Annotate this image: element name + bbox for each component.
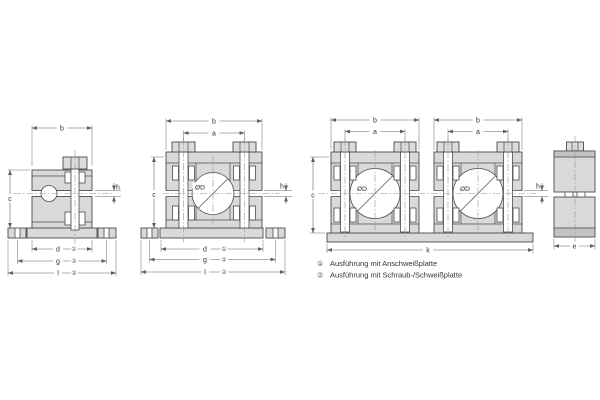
dim-label-a: a	[476, 129, 480, 136]
dim-label-d: d	[56, 247, 60, 254]
dim-l: l ②	[141, 240, 285, 277]
dim-g: g ②	[150, 240, 276, 264]
cover-plate	[554, 151, 595, 157]
dim-label-c: c	[311, 193, 315, 200]
note-marker-1: ①	[221, 246, 226, 253]
diameter-label: ØD	[460, 185, 470, 193]
plate-hole	[147, 228, 152, 238]
legend-text-2: Ausführung mit Schraub-/Schweißplatte	[330, 271, 462, 280]
drawing-page: b c h d ①	[0, 0, 600, 400]
common-plate	[327, 233, 533, 242]
note-marker-2: ②	[71, 258, 77, 265]
dim-label-b: b	[373, 118, 377, 125]
dim-c: c	[5, 170, 31, 228]
dim-label-a: a	[373, 129, 377, 136]
legend-marker-1: ①	[317, 260, 323, 268]
note-marker-2: ②	[71, 270, 77, 277]
dim-d: d ①	[161, 240, 263, 254]
dim-label-c: c	[152, 192, 156, 199]
legend-text-1: Ausführung mit Anschweißplatte	[330, 259, 437, 268]
dim-label-k: k	[426, 248, 430, 255]
plate-hole	[104, 228, 109, 238]
twin-clamp-left: ØD	[330, 139, 420, 237]
dim-label-g: g	[203, 257, 207, 264]
note-marker-2: ②	[221, 269, 227, 276]
plate-hole	[273, 228, 278, 238]
base-plate	[554, 228, 595, 237]
dim-e: e	[554, 239, 595, 251]
dim-label-h: h	[536, 184, 540, 191]
dim-label-c: c	[8, 196, 12, 203]
technical-drawing: b c h d ①	[0, 0, 600, 400]
dim-d: d ①	[32, 240, 92, 254]
legend: ① Ausführung mit Anschweißplatte ② Ausfü…	[317, 259, 462, 280]
dim-label-d: d	[203, 247, 207, 254]
diameter-label: ØD	[195, 184, 205, 192]
view-side-depth: e	[554, 136, 595, 251]
dim-label-g: g	[56, 259, 60, 266]
twin-clamp-right: ØD	[433, 139, 523, 237]
dim-c: c	[149, 157, 165, 228]
view-front-double: ØD	[308, 116, 549, 255]
dim-label-h: h	[280, 184, 284, 191]
legend-marker-2: ②	[317, 272, 323, 280]
plate-hole	[15, 228, 20, 238]
weld-plate	[160, 228, 263, 238]
dim-label-b: b	[212, 119, 216, 126]
dim-k: k	[327, 244, 533, 255]
diameter-label: ØD	[357, 185, 367, 193]
note-marker-2: ②	[221, 257, 227, 264]
dim-label-e: e	[573, 244, 577, 251]
view-front-single: ØD b	[141, 117, 292, 277]
dim-a-right: a	[448, 128, 508, 142]
dim-a: a	[184, 129, 245, 141]
dim-label-h: h	[116, 185, 120, 192]
dim-label-b: b	[476, 118, 480, 125]
weld-plate	[27, 228, 97, 238]
dim-label-a: a	[212, 131, 216, 138]
dim-c: c	[308, 157, 330, 233]
dim-a-left: a	[345, 128, 405, 142]
dim-label-b: b	[60, 126, 64, 133]
note-marker-1: ①	[71, 246, 76, 253]
view-side-single: b c h d ①	[5, 124, 122, 278]
